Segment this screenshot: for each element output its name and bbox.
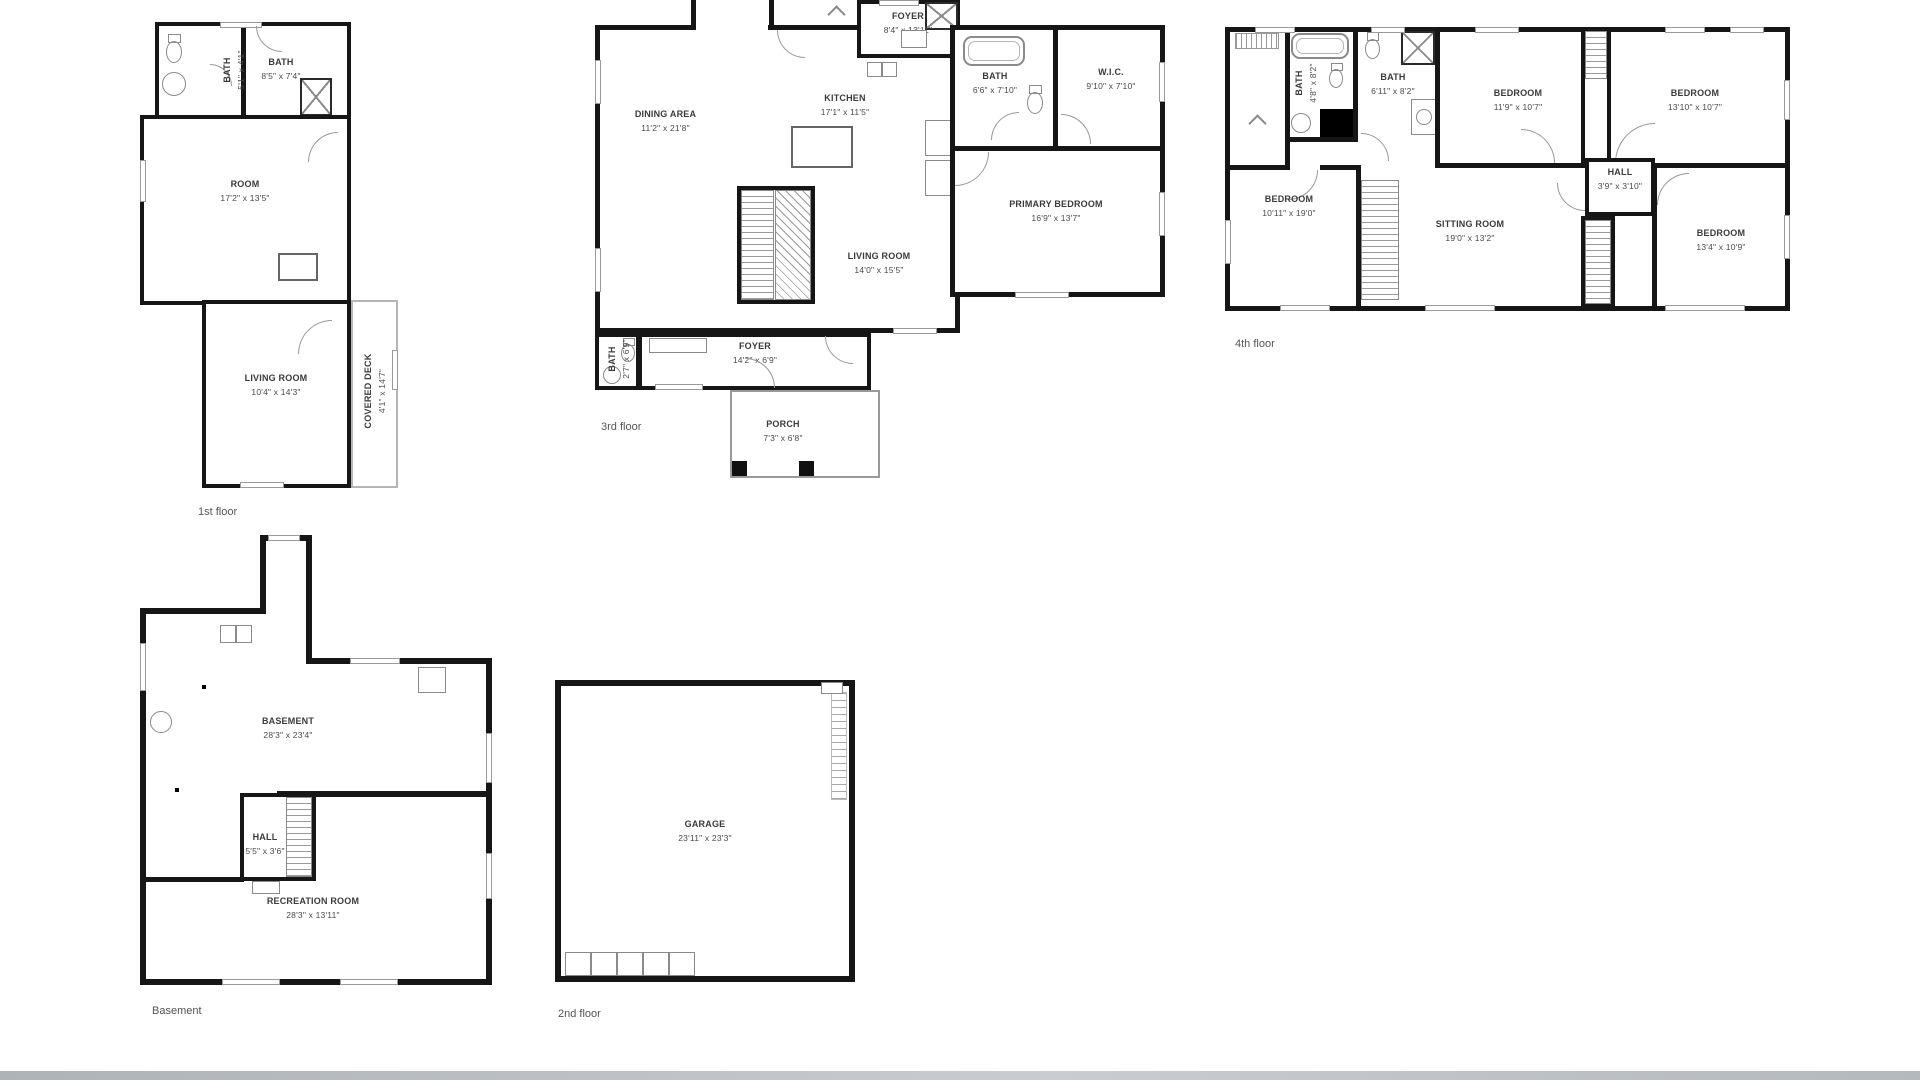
sink xyxy=(1416,109,1432,125)
kitchen-sink xyxy=(882,62,897,77)
window xyxy=(1225,220,1231,264)
room-label-bath: BATH 6'6" x 7'10" xyxy=(953,70,1037,96)
room-dims: 13'4" x 10'9" xyxy=(1663,241,1779,254)
window xyxy=(340,979,398,985)
window xyxy=(1015,292,1069,298)
room-label-bath-small: BATH 5'1" x 4'1" xyxy=(221,30,245,110)
room-name: BATH xyxy=(953,70,1037,84)
floor-label-first: 1st floor xyxy=(198,506,237,518)
window xyxy=(1475,27,1519,33)
room-label-bedroom-1: BEDROOM 11'9" x 10'7" xyxy=(1463,87,1573,113)
storage-cabinet xyxy=(565,952,591,976)
wall xyxy=(1285,27,1290,170)
storage-cabinet xyxy=(643,952,669,976)
room-name: BEDROOM xyxy=(1663,227,1779,241)
floorplan-canvas: BATH 5'1" x 4'1" BATH 8'5" x 7'4" ROOM 1… xyxy=(0,0,1920,1080)
window xyxy=(392,350,398,390)
stairs xyxy=(1585,31,1607,79)
window xyxy=(879,0,919,6)
room-name: BEDROOM xyxy=(1233,193,1345,207)
stairs xyxy=(1361,180,1399,300)
room-dims: 28'3" x 13'11" xyxy=(248,909,378,922)
wall xyxy=(691,0,696,30)
floorplan-3rd-floor: FOYER 8'4" x 13'11" KITCHEN 17'1" x 11'5… xyxy=(595,0,1173,478)
room-dims: 4'1" x 14'7" xyxy=(376,346,389,436)
room-name: BATH xyxy=(246,56,316,70)
room-dims: 10'4" x 14'3" xyxy=(220,386,332,399)
room-name: HALL xyxy=(225,831,305,845)
floor-label-second: 2nd floor xyxy=(558,1008,601,1020)
toilet xyxy=(1329,69,1343,88)
room-name: GARAGE xyxy=(650,818,760,832)
room-dims: 2'7" x 6'9" xyxy=(620,324,633,394)
wall xyxy=(1053,30,1058,151)
room-name: RECREATION ROOM xyxy=(248,895,378,909)
support-post xyxy=(202,685,206,689)
window xyxy=(222,979,280,985)
room-dims: 7'3" x 6'8" xyxy=(740,432,826,445)
floorplan-2nd-floor: GARAGE 23'11" x 23'3" 2nd floor xyxy=(555,680,857,1025)
service-door xyxy=(821,682,843,694)
window xyxy=(595,60,601,104)
room-name: DINING AREA xyxy=(613,108,718,122)
room-label-living-room: LIVING ROOM 10'4" x 14'3" xyxy=(220,372,332,398)
wall-opening xyxy=(696,25,768,30)
room-name: LIVING ROOM xyxy=(823,250,935,264)
utility-box xyxy=(418,667,446,693)
shower xyxy=(300,78,332,116)
closet-hatch xyxy=(1235,33,1279,49)
floorplan-4th-floor: BATH 4'8" x 8'2" BATH 6'11" x 8'2" BEDRO… xyxy=(1225,25,1790,355)
room-label-kitchen: KITCHEN 17'1" x 11'5" xyxy=(800,92,890,118)
room-label-bedroom-4: BEDROOM 13'4" x 10'9" xyxy=(1663,227,1779,253)
window xyxy=(486,733,492,783)
kitchen-sink xyxy=(867,62,882,77)
stairs xyxy=(741,190,774,300)
room-dims: 14'0" x 15'5" xyxy=(823,264,935,277)
room-dims: 5'5" x 3'6" xyxy=(225,845,305,858)
window xyxy=(1784,80,1790,120)
wall xyxy=(486,658,492,985)
room-name: KITCHEN xyxy=(800,92,890,106)
window xyxy=(1159,62,1165,102)
wall xyxy=(140,877,244,882)
room-name: PORCH xyxy=(740,418,826,432)
wall xyxy=(140,979,492,985)
room-name: FOYER xyxy=(863,10,953,24)
room-dims: 19'0" x 13'2" xyxy=(1413,232,1527,245)
vent-chevron xyxy=(827,5,845,23)
chimney xyxy=(1320,109,1353,137)
window xyxy=(1730,27,1764,33)
room-label-porch: PORCH 7'3" x 6'8" xyxy=(740,418,826,444)
room-label-covered-deck: COVERED DECK 4'1" x 14'7" xyxy=(362,346,388,436)
window xyxy=(1255,27,1295,33)
window xyxy=(1280,305,1330,311)
room-dims: 17'2" x 13'5" xyxy=(195,192,295,205)
tv-cabinet xyxy=(278,253,318,281)
floor-label-fourth: 4th floor xyxy=(1235,338,1275,350)
electrical-meter xyxy=(150,711,172,733)
room-label-bath-small: BATH 4'8" x 8'2" xyxy=(1293,48,1313,118)
room-dims: 10'11" x 19'0" xyxy=(1233,207,1345,220)
wall xyxy=(1320,165,1360,170)
window xyxy=(1159,192,1165,236)
toilet xyxy=(1365,39,1380,59)
room-dims: 6'11" x 8'2" xyxy=(1353,85,1433,98)
bathtub xyxy=(963,36,1025,66)
stairs xyxy=(775,190,811,300)
window xyxy=(140,160,146,202)
window xyxy=(1665,305,1745,311)
window xyxy=(486,853,492,899)
floorplan-1st-floor: BATH 5'1" x 4'1" BATH 8'5" x 7'4" ROOM 1… xyxy=(140,20,398,530)
room-dims: 17'1" x 11'5" xyxy=(800,106,890,119)
floor-label-third: 3rd floor xyxy=(601,421,641,433)
room-dims: 23'11" x 23'3" xyxy=(650,832,760,845)
room-label-garage: GARAGE 23'11" x 23'3" xyxy=(650,818,760,844)
room-label-wic: W.I.C. 9'10" x 7'10" xyxy=(1065,66,1157,92)
window xyxy=(893,328,937,334)
laundry-sink xyxy=(220,625,236,643)
window xyxy=(240,482,284,488)
room-name: BEDROOM xyxy=(1463,87,1573,101)
storage-cabinet xyxy=(591,952,617,976)
room-name: BATH xyxy=(221,30,235,110)
room-label-primary-bedroom: PRIMARY BEDROOM 16'9" x 13'7" xyxy=(993,198,1119,224)
room-dims: 13'10" x 10'7" xyxy=(1637,101,1753,114)
room-dims: 28'3" x 23'4" xyxy=(233,729,343,742)
room-label-basement: BASEMENT 28'3" x 23'4" xyxy=(233,715,343,741)
room-dims: 16'9" x 13'7" xyxy=(993,212,1119,225)
room-label-bedroom-3: BEDROOM 10'11" x 19'0" xyxy=(1233,193,1345,219)
room-label-living-room: LIVING ROOM 14'0" x 15'5" xyxy=(823,250,935,276)
wall xyxy=(260,535,266,614)
wall xyxy=(1285,137,1358,142)
stove xyxy=(901,30,927,48)
shower xyxy=(1401,31,1435,65)
room-name: BATH xyxy=(606,324,620,394)
room-dims: 9'10" x 7'10" xyxy=(1065,80,1157,93)
window xyxy=(140,643,146,691)
sink xyxy=(162,72,186,96)
room-label-sitting-room: SITTING ROOM 19'0" x 13'2" xyxy=(1413,218,1527,244)
room-name: PRIMARY BEDROOM xyxy=(993,198,1119,212)
utility-sink xyxy=(252,881,280,894)
window xyxy=(1425,305,1495,311)
room-label-room: ROOM 17'2" x 13'5" xyxy=(195,178,295,204)
wall xyxy=(306,535,312,664)
garage-door-track xyxy=(831,692,847,800)
window xyxy=(1784,215,1790,259)
stairs xyxy=(1585,220,1611,304)
room-name: W.I.C. xyxy=(1065,66,1157,80)
room-name: ROOM xyxy=(195,178,295,192)
room-dims: 4'8" x 8'2" xyxy=(1307,48,1320,118)
closet xyxy=(649,338,707,353)
room-name: FOYER xyxy=(707,340,803,354)
room-label-hall: HALL 5'5" x 3'6" xyxy=(225,831,305,857)
room-dims: 11'9" x 10'7" xyxy=(1463,101,1573,114)
room-name: BEDROOM xyxy=(1637,87,1753,101)
porch-post xyxy=(732,461,747,476)
cabinet xyxy=(925,120,953,156)
room-name: COVERED DECK xyxy=(362,346,376,436)
room-dims: 6'6" x 7'10" xyxy=(953,84,1037,97)
room-name: BATH xyxy=(1293,48,1307,118)
wall xyxy=(1225,165,1290,170)
room-dims: 11'2" x 21'8" xyxy=(613,122,718,135)
kitchen-island xyxy=(791,126,853,168)
porch-post xyxy=(799,461,814,476)
room-name: BASEMENT xyxy=(233,715,343,729)
floor-label-basement: Basement xyxy=(152,1005,202,1017)
room-label-bath: BATH 6'11" x 8'2" xyxy=(1353,71,1433,97)
wall xyxy=(1652,165,1657,311)
room-label-dining: DINING AREA 11'2" x 21'8" xyxy=(613,108,718,134)
wall xyxy=(140,608,266,614)
wall xyxy=(1435,27,1440,168)
toilet xyxy=(166,41,182,63)
cabinet xyxy=(925,160,953,196)
support-post xyxy=(175,788,179,792)
window xyxy=(1665,27,1705,33)
room-name: BATH xyxy=(1353,71,1433,85)
room-name: LIVING ROOM xyxy=(220,372,332,386)
wall xyxy=(769,0,774,30)
room-label-bedroom-2: BEDROOM 13'10" x 10'7" xyxy=(1637,87,1753,113)
room-label-bath-small: BATH 2'7" x 6'9" xyxy=(606,324,628,394)
window xyxy=(655,384,703,390)
window xyxy=(595,248,601,292)
window xyxy=(268,535,300,541)
photo-edge-bar xyxy=(0,1071,1920,1080)
room-dims: 3'9" x 3'10" xyxy=(1587,180,1653,193)
room-label-hall: HALL 3'9" x 3'10" xyxy=(1587,166,1653,192)
storage-cabinet xyxy=(617,952,643,976)
window xyxy=(1371,27,1405,33)
storage-cabinet xyxy=(669,952,695,976)
room-label-recreation-room: RECREATION ROOM 28'3" x 13'11" xyxy=(248,895,378,921)
room-name: SITTING ROOM xyxy=(1413,218,1527,232)
room-name: HALL xyxy=(1587,166,1653,180)
window xyxy=(350,658,400,664)
laundry-sink xyxy=(236,625,252,643)
floorplan-basement: HALL 5'5" x 3'6" BASEMENT 28'3" x 23'4" … xyxy=(140,535,492,1025)
